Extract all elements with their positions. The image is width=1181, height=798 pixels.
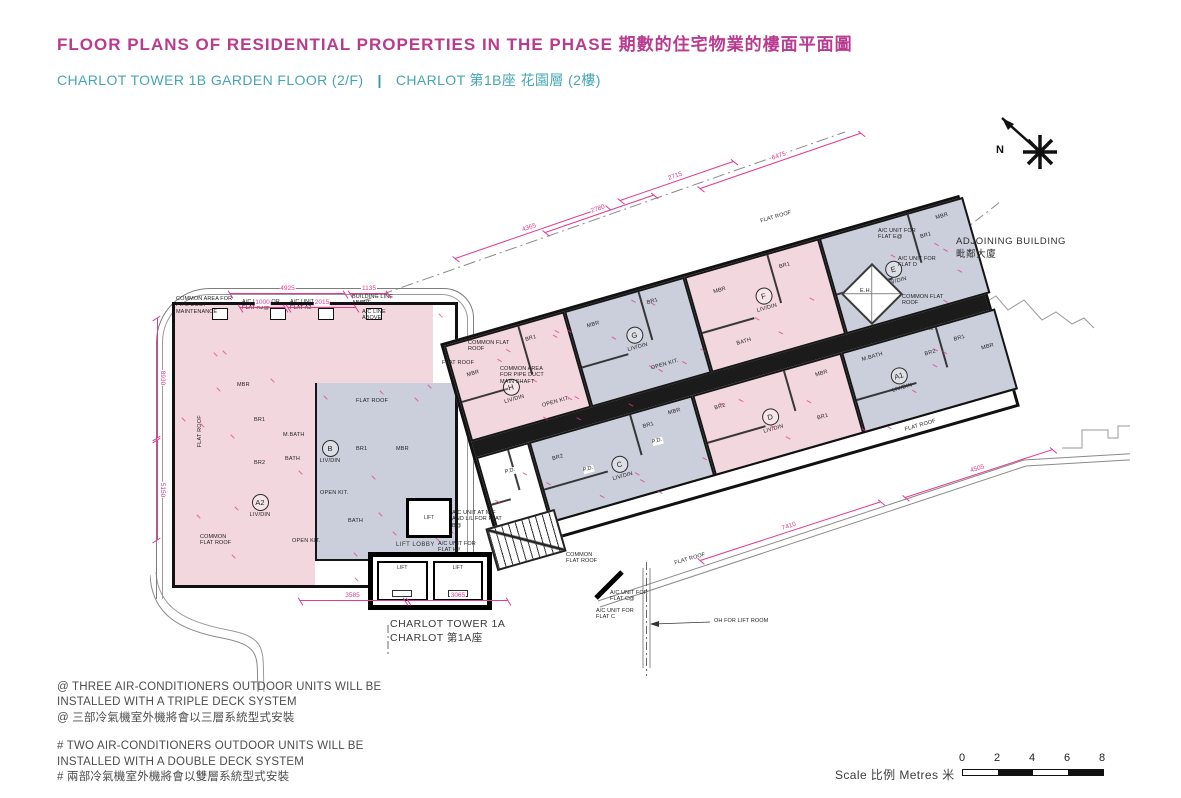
flat-roof-label: FLAT ROOF xyxy=(760,210,793,225)
note-triple-deck: @ THREE AIR-CONDITIONERS OUTDOOR UNITS W… xyxy=(57,680,381,726)
room-label-bath: BATH xyxy=(348,518,363,524)
scale-tick-label: 8 xyxy=(1099,752,1105,764)
annotation: A/C UNIT FOR FLAT E@ xyxy=(878,228,924,241)
scale-bar-segments xyxy=(962,769,1104,776)
survey-tick xyxy=(355,578,359,582)
scale-caption: Scale 比例 Metres 米 xyxy=(835,766,955,783)
room-label-mbr: MBR xyxy=(396,446,409,452)
room-label-mbr: MBR xyxy=(713,286,727,295)
room-label-br1: BR1 xyxy=(953,334,966,343)
unit-bubble-b: B LIV/DIN xyxy=(313,440,347,464)
room-label-bath: BATH xyxy=(285,456,300,462)
lift-lobby-label: LIFT LOBBY xyxy=(396,542,435,548)
survey-tick xyxy=(438,313,442,317)
room-label-openkit: OPEN KIT. xyxy=(541,395,570,409)
annotation: COMMON FLAT ROOF xyxy=(200,534,240,547)
dimension-line: 3585 xyxy=(300,600,405,601)
room-label-mbr: MBR xyxy=(815,369,829,378)
tower-1a-block: LIFT LIFT xyxy=(368,552,492,610)
scale-tick-label: 0 xyxy=(959,752,965,764)
flat-roof-label: FLAT ROOF xyxy=(904,418,937,433)
room-label-br1: BR1 xyxy=(817,413,830,422)
lift-box: LIFT xyxy=(377,561,428,601)
room-label-br1: BR1 xyxy=(356,446,367,452)
annotation: A/C UNIT FOR FLAT H# xyxy=(438,541,484,554)
subtitle-tower-en: CHARLOT TOWER 1B GARDEN FLOOR (2/F) xyxy=(57,72,364,88)
note-double-deck: # TWO AIR-CONDITIONERS OUTDOOR UNITS WIL… xyxy=(57,739,381,785)
dimension-line: 1135 xyxy=(350,293,388,294)
room-label-br1: BR1 xyxy=(525,334,538,343)
dimension-line: 3065 xyxy=(408,600,508,601)
annotation: A/C UNIT AT M/F AND L/L FOR FLAT B@ xyxy=(452,510,508,529)
scale-tick-label: 4 xyxy=(1029,752,1035,764)
annotation: A/C UNIT FOR FLAT D xyxy=(898,256,942,269)
page-title: FLOOR PLANS OF RESIDENTIAL PROPERTIES IN… xyxy=(57,30,853,55)
north-compass-icon xyxy=(1002,118,1057,169)
room-label-mbr: MBR xyxy=(586,320,600,329)
room-label-br1: BR1 xyxy=(254,417,265,423)
annotation: COMMON AREA FOR PIPE DUCT MAIN SHAFT xyxy=(500,366,556,385)
scale-tick-label: 6 xyxy=(1064,752,1070,764)
dimension-line: 5150 xyxy=(157,440,158,540)
road-edge-south xyxy=(643,568,650,668)
adjoining-building-label: ADJOINING BUILDING 毗鄰大廈 xyxy=(956,236,1066,262)
annotation: COMMON FLAT ROOF xyxy=(902,294,944,307)
unit-bubble-d: DLIV/DIN xyxy=(751,404,790,436)
flat-roof-label: FLAT ROOF xyxy=(356,398,388,405)
annotation: A/C LINE ABOVE xyxy=(362,309,402,322)
room-label-mbr: MBR xyxy=(981,342,995,351)
dimension-line: 6475 xyxy=(700,133,861,189)
tower-1a-label: CHARLOT TOWER 1A CHARLOT 第1A座 xyxy=(390,618,505,645)
room-label-br2: BR2 xyxy=(552,453,565,462)
annotation: COMMON FLAT ROOF xyxy=(566,552,606,565)
flat-roof-label: FLAT ROOF xyxy=(197,415,204,447)
unit-bubble-g: GLIV/DIN xyxy=(616,322,655,354)
subtitle-tower-zh: CHARLOT 第1B座 花園層 (2樓) xyxy=(396,72,601,88)
oh-leader-line xyxy=(654,622,710,624)
annotation: COMMON FLAT ROOF xyxy=(468,340,510,353)
flat-roof-label: FLAT ROOF xyxy=(442,360,474,367)
dimension-line: 4365 xyxy=(455,206,607,259)
dimension-line: 4925 xyxy=(230,293,345,294)
dimension-line: 8930 xyxy=(157,318,158,438)
unit-bubble-c: CLIV/DIN xyxy=(601,452,640,484)
lift-sill xyxy=(392,590,412,597)
unit-bubble-a2: A2 LIV/DIN xyxy=(243,494,277,518)
room-label-mbr: MBR xyxy=(466,369,480,378)
room-label-mbath: M.BATH xyxy=(283,432,305,438)
dimension-line: 2780 xyxy=(545,195,654,233)
adjoining-building-outline-east xyxy=(1062,426,1130,448)
room-label-openkit: OPEN KIT. xyxy=(292,538,320,544)
room-label-br2: BR2 xyxy=(254,460,265,466)
room-label-br1: BR1 xyxy=(642,421,655,430)
scale-tick-label: 2 xyxy=(994,752,1000,764)
eh-label: E.H. xyxy=(860,288,872,295)
room-label-bath: BATH xyxy=(736,337,752,347)
annotation: A/C UNIT FOR FLAT C xyxy=(596,608,640,621)
room-label-mbr: MBR xyxy=(667,407,681,416)
room-label-openkit: OPEN KIT. xyxy=(650,358,679,372)
oh-leader-arrowhead xyxy=(650,621,659,627)
annotation: COMMON AREA FOR PIPE DUCT MAINTENANCE xyxy=(176,296,234,315)
room-label-mbr: MBR xyxy=(935,212,949,221)
dimension-line: 2015 xyxy=(288,307,356,308)
unit-bubble-f: FLIV/DIN xyxy=(745,283,784,315)
dimension-line: 1000 xyxy=(240,307,285,308)
room-label-br1: BR1 xyxy=(778,261,791,270)
lift-box: LIFT xyxy=(406,498,452,538)
north-label: N xyxy=(996,144,1004,156)
page-subtitle: CHARLOT TOWER 1B GARDEN FLOOR (2/F)|CHAR… xyxy=(57,70,601,90)
annotation: A/C UNIT FOR FLAT A1 xyxy=(912,320,958,333)
subtitle-divider: | xyxy=(378,72,382,88)
footnotes: @ THREE AIR-CONDITIONERS OUTDOOR UNITS W… xyxy=(57,680,381,798)
floor-plan: FLAT ROOF MBR BR1 BR2 M.BATH BATH A2 LIV… xyxy=(150,110,1130,695)
room-label-mbath: M.BATH xyxy=(861,351,883,363)
room-label-mbr: MBR xyxy=(237,382,250,388)
scale-bar: Scale 比例 Metres 米 0 2 4 6 8 xyxy=(835,752,1125,784)
room-label-openkit: OPEN KIT. xyxy=(320,490,348,496)
annotation: A/C UNIT FOR FLAT C@ xyxy=(610,590,656,603)
dimension-line: 4505 xyxy=(905,449,1053,498)
annotation: OH FOR LIFT ROOM xyxy=(714,618,794,624)
dimension-line: 7410 xyxy=(700,501,881,561)
